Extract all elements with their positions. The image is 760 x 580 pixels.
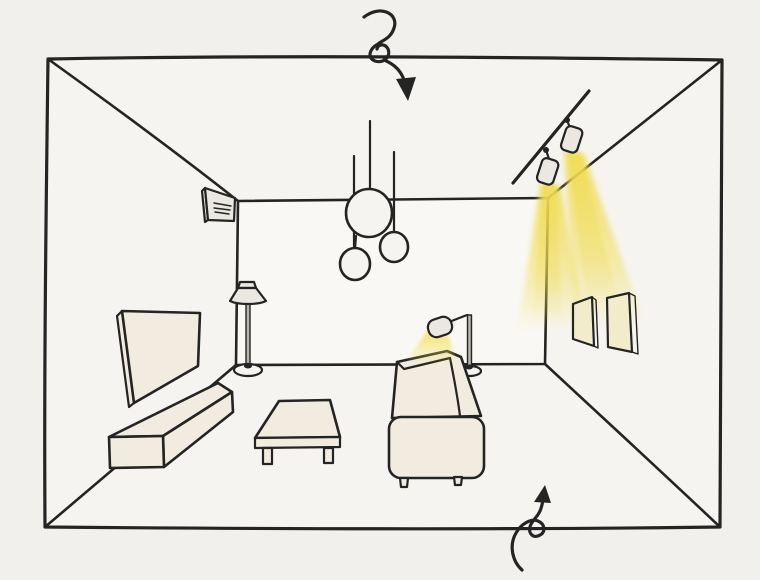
sofa-foot-right <box>454 477 462 485</box>
sofa-foot-left <box>400 478 408 487</box>
table-leg-right <box>324 448 333 463</box>
pendant-globe-large <box>346 189 392 237</box>
pendant-globe-left <box>340 248 370 280</box>
back-wall <box>236 198 548 365</box>
picture-frame-large <box>607 293 632 352</box>
console-front <box>109 436 164 468</box>
reading-lamp-pole <box>468 315 472 368</box>
table-leg-left <box>263 448 272 464</box>
top-arrow-curl <box>364 11 395 62</box>
sofa-base <box>389 417 484 478</box>
picture-frame-small <box>573 297 594 346</box>
room-lighting-illustration <box>0 0 760 580</box>
pendant-globe-right <box>380 232 408 262</box>
sketch-canvas <box>0 0 760 580</box>
floor-lamp-pole <box>246 300 250 366</box>
table-apron <box>255 437 340 448</box>
